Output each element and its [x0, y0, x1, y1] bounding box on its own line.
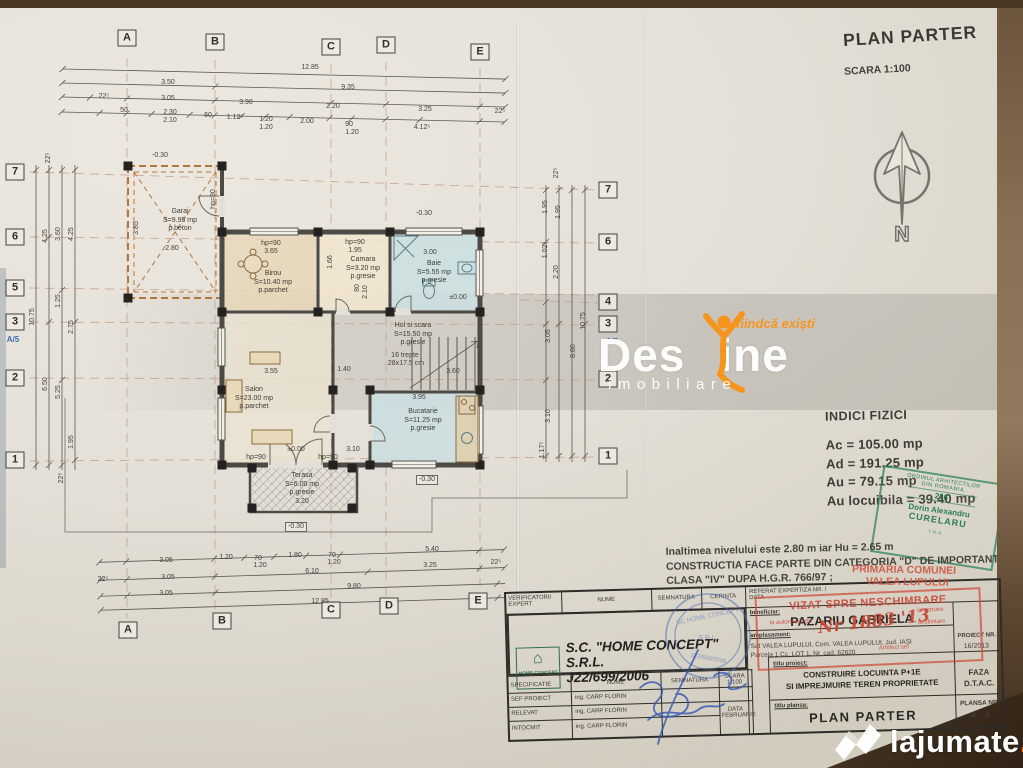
- destine-tagline: fiindcă exiști: [736, 316, 815, 331]
- dimension-label: 12.85: [301, 64, 319, 72]
- scanned-floor-plan-photo: ABCDEABCDE765321764321A/5A/512.853.509.3…: [0, 0, 1023, 768]
- grid-axis-label: C: [322, 39, 341, 56]
- dimension-label: 1.20: [259, 116, 273, 124]
- room-label: Terasa S=6.00 mp p.gresie 3.20: [285, 472, 319, 506]
- dimension-label: 1.95: [542, 200, 550, 214]
- dimension-label: hp=90: [261, 240, 281, 248]
- dimension-label: 3.60: [55, 227, 63, 241]
- dimension-label: 22⁵: [553, 168, 561, 179]
- grid-axis-label: 2: [6, 370, 25, 387]
- dimension-label: 4.25: [42, 229, 50, 243]
- room-label: Baie S=5.55 mp p.gresie: [417, 260, 451, 286]
- dimension-label: -0.30: [152, 152, 168, 160]
- vizat-stamp: VIZAT SPRE NESCHIMBARE la autorizatia de…: [754, 587, 983, 671]
- dimension-label: 3.55: [264, 368, 278, 376]
- dimension-label: 6.10: [305, 568, 319, 576]
- vizat-signer: Arhitect sef: [879, 644, 909, 651]
- dimension-label: 3.65: [264, 248, 278, 256]
- grid-axis-label: B: [206, 34, 225, 51]
- grid-axis-label: D: [380, 598, 399, 615]
- level-marker: -0.30: [416, 475, 438, 485]
- dimension-label: 5.40: [425, 546, 439, 554]
- dimension-label: 1.66: [327, 255, 335, 269]
- dimension-label: 1.95: [68, 435, 76, 449]
- grid-axis-label: 7: [6, 164, 25, 181]
- grid-axis-label: D: [377, 37, 396, 54]
- dimension-label: 3.60: [446, 368, 460, 376]
- dimension-label: ±0.00: [287, 446, 304, 454]
- dimension-label: 1.25: [55, 294, 63, 308]
- level-marker: -0.30: [285, 522, 307, 532]
- room-label: Hol si scara S=15.50 mp p.gresie: [394, 322, 432, 348]
- dimension-label: 22⁵: [98, 576, 109, 584]
- grid-axis-label: 5: [6, 280, 25, 297]
- dimension-label: 9.80: [347, 583, 361, 591]
- dimension-label: 2.30: [163, 109, 177, 117]
- dimension-label: -0.30: [416, 210, 432, 218]
- room-label: Camara S=3.20 mp p.gresie: [346, 256, 380, 282]
- grid-axis-label: B: [213, 613, 232, 630]
- room-label: Birou S=10.40 mp p.parchet: [254, 270, 292, 296]
- dimension-label: 22⁵: [495, 108, 506, 116]
- room-label: Garaj S=9.95 mp p.beton: [163, 208, 197, 234]
- dimension-label: 12.85: [311, 598, 329, 606]
- dimension-label: 3.05: [545, 329, 553, 343]
- destine-watermark: Desine fiindcă exiști imobiliare: [598, 314, 848, 400]
- grid-axis-label: A: [118, 30, 137, 47]
- dimension-label: 70: [328, 552, 336, 560]
- dimension-label: 2.80: [165, 245, 179, 253]
- grid-axis-label: 3: [6, 314, 25, 331]
- dimension-label: 2.20: [326, 103, 340, 111]
- grid-axis-label: C: [322, 602, 341, 619]
- dimension-label: 5.25: [55, 385, 63, 399]
- dimension-label: hp=90: [345, 239, 365, 247]
- dimension-label: 60: [204, 112, 212, 120]
- dimension-label: 90: [345, 121, 353, 129]
- dimension-label: 2.75: [68, 320, 76, 334]
- destine-subtitle: imobiliare: [608, 376, 737, 393]
- grid-axis-label: A: [119, 622, 138, 639]
- dimension-label: 3.05: [159, 590, 173, 598]
- grid-axis-label: 1: [599, 448, 618, 465]
- dimension-label: 1.02⁵: [542, 242, 550, 259]
- dimension-label: 3.10: [346, 446, 360, 454]
- destine-part1: Des: [598, 329, 685, 381]
- dimension-label: 3.85: [133, 221, 141, 235]
- dimension-label: 1.80: [288, 552, 302, 560]
- axis-mark-blue: A/5: [7, 336, 19, 344]
- dimension-label: 16 trepte: [391, 352, 419, 360]
- grid-axis-label: E: [471, 44, 490, 61]
- dimension-label: 10.75: [580, 312, 588, 330]
- lajumate-logo-icon: [832, 720, 884, 764]
- dimension-label: 10.75: [29, 308, 37, 326]
- grid-axis-label: 6: [599, 234, 618, 251]
- dimension-label: 3.90: [239, 99, 253, 107]
- dimension-label: 22⁵: [45, 153, 53, 164]
- grid-axis-label: 4: [599, 294, 618, 311]
- room-label: Salon S=23.00 mp p.parchet: [235, 386, 273, 412]
- dimension-label: hp=90: [210, 189, 218, 209]
- vizat-aux: la autorizatia de: [770, 618, 813, 626]
- city-hall-stamp-text: PRIMĂRIA COMUNEI VALEA LUPULUI: [852, 563, 956, 589]
- dimension-label: 50: [120, 107, 128, 115]
- dimension-label: 3.05: [161, 95, 175, 103]
- dimension-label: 1.20: [259, 124, 273, 132]
- dimension-label: 1.17⁵: [539, 442, 547, 459]
- dimension-label: 8.80: [570, 344, 578, 358]
- dimension-label: 9.35: [341, 84, 355, 92]
- dimension-label: 4.25: [68, 227, 76, 241]
- dimension-label: 1.95: [348, 247, 362, 255]
- dimension-label: hp=90: [246, 454, 266, 462]
- dimension-label: 3.10: [545, 409, 553, 423]
- dimension-label: 3.00: [423, 249, 437, 257]
- vizat-title: VIZAT SPRE NESCHIMBARE: [757, 592, 979, 614]
- dimension-label: 28x17.5 cm: [388, 360, 424, 368]
- dimension-label: 3.50: [161, 79, 175, 87]
- grid-axis-label: 1: [6, 452, 25, 469]
- dimension-label: 3.95: [412, 394, 426, 402]
- dimension-label: 3.25: [418, 106, 432, 114]
- destine-wordmark: Desine: [598, 328, 789, 382]
- dimension-label: 80: [354, 284, 362, 292]
- dimension-label: 22⁵: [58, 473, 66, 484]
- dimension-label: 2.00: [300, 118, 314, 126]
- lajumate-watermark: lajumate.ro: [832, 720, 1023, 764]
- lajumate-name: lajumate: [890, 724, 1020, 760]
- dimension-label: 2.10: [163, 117, 177, 125]
- dimension-label: hp=90: [318, 454, 338, 462]
- dimension-label: 4.12⁵: [414, 124, 431, 132]
- dimension-label: 22⁵: [491, 559, 502, 567]
- dimension-label: ±0.00: [449, 294, 466, 302]
- dimension-label: 22⁵: [99, 93, 110, 101]
- dimension-label: 2.10: [362, 285, 370, 299]
- dimension-label: 3.25: [423, 562, 437, 570]
- room-label: Bucatarie S=11.25 mp p.gresie: [404, 408, 441, 434]
- dimension-label: 1.12⁵: [227, 114, 244, 122]
- dimension-label: 2.20: [553, 265, 561, 279]
- city-hall-line2: VALEA LUPULUI: [866, 575, 956, 589]
- dimension-label: 3.05: [159, 557, 173, 565]
- dimension-label: 70: [254, 555, 262, 563]
- grid-axis-label: 6: [6, 229, 25, 246]
- dimension-label: 1.20: [345, 129, 359, 137]
- handwritten-signatures: [596, 592, 776, 762]
- dimension-label: 1.20: [253, 562, 267, 570]
- dimension-label: 1.20: [327, 559, 341, 567]
- dimension-label: 3.05: [161, 574, 175, 582]
- dimension-label: 6.50: [42, 377, 50, 391]
- dimension-label: 1.20: [219, 554, 233, 562]
- grid-axis-label: E: [469, 593, 488, 610]
- grid-axis-label: 7: [599, 182, 618, 199]
- dimension-label: 1.40: [337, 366, 351, 374]
- dimension-label: 1.95: [555, 205, 563, 219]
